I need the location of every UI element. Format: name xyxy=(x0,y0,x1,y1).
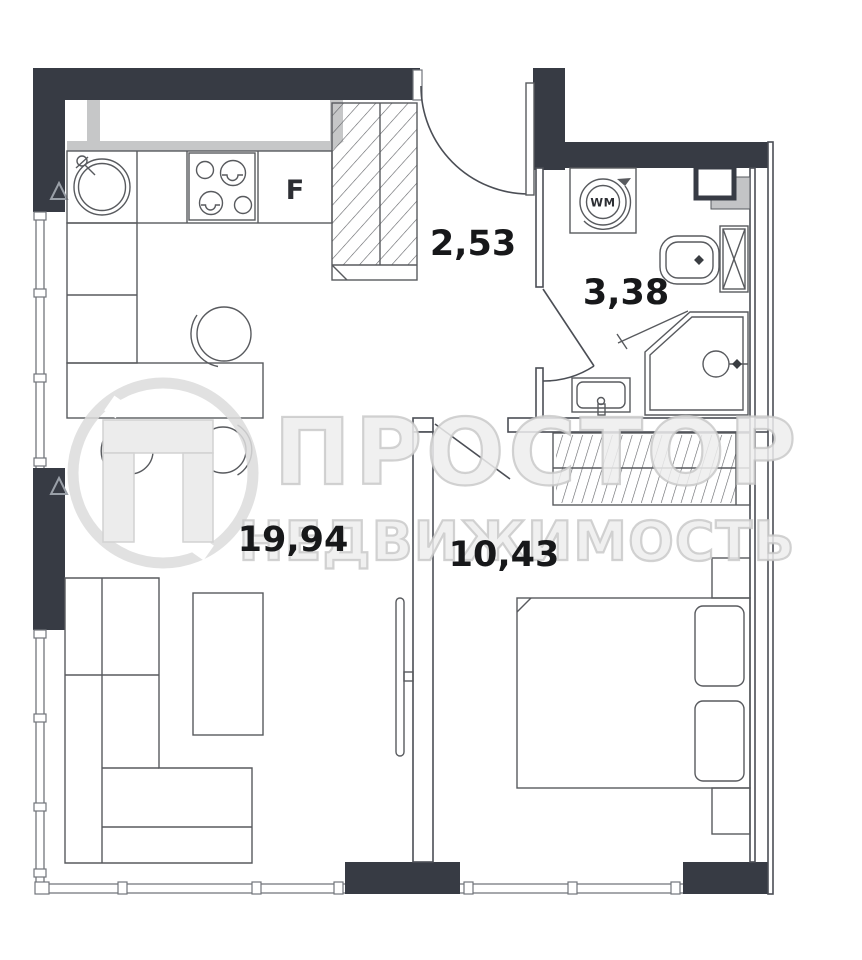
living-room xyxy=(65,578,413,863)
window-bottom-bedroom xyxy=(460,882,683,894)
wall-left-middle xyxy=(33,468,65,630)
watermark-line1: ПРОСТОР xyxy=(274,399,801,506)
bedroom-area-label: 10,43 xyxy=(449,535,560,575)
floor-plan-page: F xyxy=(0,0,862,960)
wall-top xyxy=(33,68,420,100)
wall-bottom-center xyxy=(345,862,460,894)
hall-wardrobe xyxy=(332,103,417,280)
stove xyxy=(189,153,255,220)
kitchen-sink xyxy=(74,156,130,215)
coffee-table xyxy=(193,593,263,735)
bed xyxy=(517,598,750,788)
pillow-top xyxy=(695,606,744,686)
wall-bottom-right xyxy=(683,862,773,894)
fridge-label: F xyxy=(286,175,304,206)
wall-bathroom-top xyxy=(565,142,773,168)
window-left-upper xyxy=(34,212,46,468)
entrance-door-leaf xyxy=(526,83,534,195)
nightstand-bottom xyxy=(712,788,750,834)
window-left-lower xyxy=(34,630,46,884)
entrance-door xyxy=(413,70,534,195)
watermark: ПРОСТОР НЕДВИЖИМОСТЬ xyxy=(73,383,800,573)
vent-shaft xyxy=(696,167,750,209)
bathroom-left-wall-upper xyxy=(536,168,543,287)
entrance-door-arc xyxy=(421,86,528,194)
kitchen-niche-mullion-left xyxy=(87,100,100,141)
wall-left-upper xyxy=(33,68,65,212)
kitchen-counter-left xyxy=(67,223,137,363)
tv xyxy=(396,598,413,756)
floor-plan-drawing: F xyxy=(0,0,862,960)
corner-sofa xyxy=(65,578,252,863)
washing-machine: WM xyxy=(570,168,636,233)
toilet xyxy=(660,226,748,292)
bathroom-area-label: 3,38 xyxy=(583,273,669,313)
wall-entry-stub xyxy=(533,68,565,170)
window-bottom-living xyxy=(35,882,345,894)
hallway-area-label: 2,53 xyxy=(430,224,516,264)
living-kitchen-area-label: 19,94 xyxy=(238,520,349,560)
pillow-bottom xyxy=(695,701,744,781)
kitchen-bulkhead-band xyxy=(67,141,344,151)
round-table xyxy=(191,307,251,367)
washing-machine-label: WM xyxy=(590,196,615,210)
